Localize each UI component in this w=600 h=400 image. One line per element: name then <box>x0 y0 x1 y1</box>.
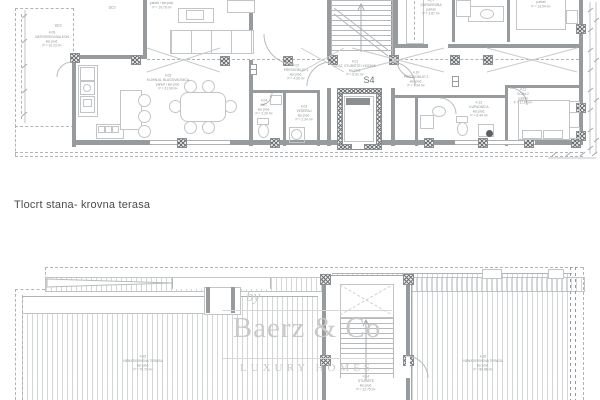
room-label: 4.05 KUHINJA, BLAGOVAONICA parket / ker.… <box>147 74 189 91</box>
floorplan-sheet: 28+0 28+0 Tlocrt stana- krovna terasa <box>0 0 600 400</box>
riser-annotation: 28+0 <box>109 6 116 10</box>
dimension-tick <box>22 8 599 156</box>
watermark-by: by <box>246 289 260 306</box>
unit-label: S4 <box>363 75 374 85</box>
room-area: P = 10.23 m² <box>35 44 69 48</box>
room-area: P = 2.34 m² <box>295 118 312 122</box>
room-label: 4.16 NENATKRIVENA TERASA ker.ploč. P = 8… <box>463 355 502 372</box>
riser-annotation: 28+0 <box>55 24 62 28</box>
room-label: 4.03 VEŠERAJ ker.ploč. P = 2.34 m² <box>295 105 312 122</box>
room-area: P = 19.76 m² <box>150 6 174 10</box>
room-label: parket P = 13.54 m² <box>532 1 551 10</box>
level-marker <box>250 64 257 75</box>
room-area: P = 21.09 m² <box>147 87 189 91</box>
room-area: P = 2.20 m² <box>255 112 272 116</box>
room-label: 4.04 WC ker.ploč. P = 2.20 m² <box>255 99 272 116</box>
room-area: P = 80.86 m² <box>463 368 502 372</box>
watermark-rule <box>222 358 392 359</box>
room-label: parket / ker.ploč. P = 19.76 m² <box>150 2 174 11</box>
room-label: 4.12 KUPAONICA ker.ploč. P = 6.44 m² <box>469 101 488 118</box>
level-marker <box>452 76 459 87</box>
watermark-brand: Baerz & Co <box>222 312 392 345</box>
room-area: P = 7.34 m² <box>404 84 429 88</box>
room-label: 4.02 PREDSOBLJE 1 ker.ploč. P = 4.30 m² <box>284 64 309 81</box>
room-area: P = 4.30 m² <box>284 77 309 81</box>
room-area: P = 3.87 m² <box>420 12 441 16</box>
watermark-rule <box>222 310 392 311</box>
room-area: P = 13.54 m² <box>532 5 551 9</box>
watermark: by Baerz & Co LUXURY HOMES <box>222 288 392 380</box>
room-label: 4.10 PREDSOBLJE 2 ker.ploč. P = 7.34 m² <box>404 71 429 88</box>
room-label: 4.07 GARDEROBA parket P = 3.87 m² <box>420 0 441 17</box>
room-area: P = 6.44 m² <box>469 114 488 118</box>
room-area: P = 79.72 m² <box>123 368 162 372</box>
dimension-chain <box>25 2 596 158</box>
planter-wedge <box>47 279 172 287</box>
room-label: 4.11 SOBA 2 parket P = 11.95 m² <box>514 88 533 105</box>
room-label: 4.15 NENATKRIVENA TERASA ker.ploč. P = 7… <box>123 355 162 372</box>
room-label: 4.09 NATKRIVENI BALKON ker.ploč. P = 10.… <box>35 31 69 48</box>
room-area: P = 12.75 m² <box>357 388 376 392</box>
watermark-tagline: LUXURY HOMES <box>222 362 392 374</box>
room-area: P = 11.95 m² <box>514 101 533 105</box>
